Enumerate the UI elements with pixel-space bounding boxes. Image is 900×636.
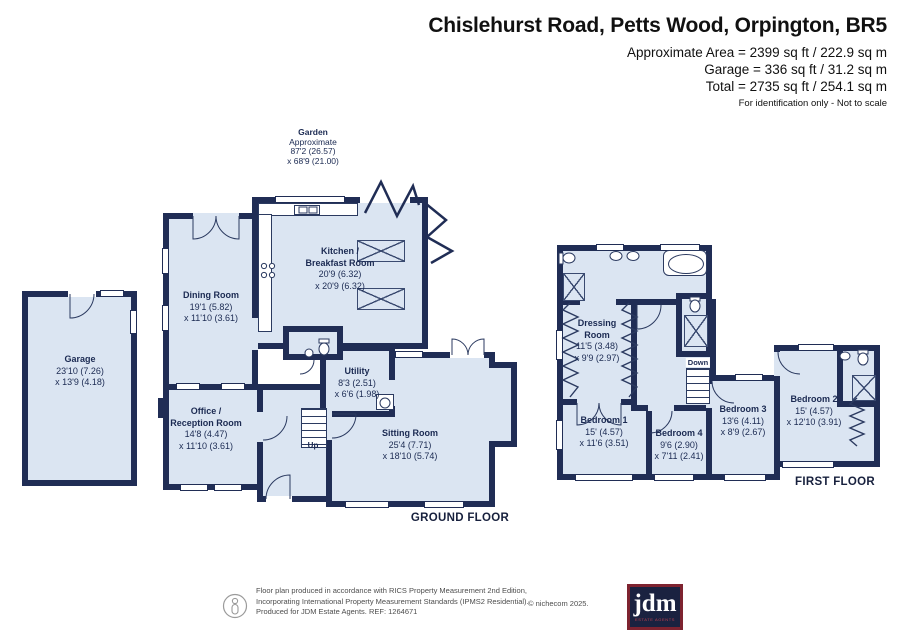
room-name: Bedroom 4 [654, 428, 703, 440]
first-floor-label: FIRST FLOOR [795, 476, 875, 488]
sitting-french-opening [450, 352, 484, 358]
kitchen-bifold-opening [360, 197, 410, 203]
ensuite-shower-tray [852, 375, 876, 401]
office-bay-window-1 [180, 484, 208, 491]
kitchen-counter-left [258, 214, 272, 332]
room-dim: x 11'10 (3.61) [183, 313, 239, 325]
office-bay-window-2 [214, 484, 242, 491]
landing-bedroom4-opening [648, 405, 674, 411]
room-dim: 13'6 (4.11) [719, 416, 766, 428]
sitting-label: Sitting Room 25'4 (7.71) x 18'10 (5.74) [382, 428, 438, 463]
bedroom2-door-opening [774, 352, 780, 376]
jdm-logo: jdm ESTATE AGENTS [627, 584, 683, 630]
sitting-window-top [395, 351, 423, 358]
bedroom4-label: Bedroom 4 9'6 (2.90) x 7'11 (2.41) [654, 428, 703, 463]
dining-label: Dining Room 19'1 (5.82) x 11'10 (3.61) [183, 290, 239, 325]
bedroom3-window [724, 474, 766, 481]
room-dim: 23'10 (7.26) [55, 366, 105, 378]
footer: Floor plan produced in accordance with R… [222, 586, 529, 626]
up-label: Up [308, 441, 319, 450]
bedroom3-window-top [735, 374, 763, 381]
sitting-room-wing [489, 362, 517, 447]
room-dim: 8'3 (2.51) [335, 378, 380, 390]
bath-dressing-opening [580, 299, 616, 305]
room-dim: 20'9 (6.32) [305, 269, 374, 281]
wc-door-arc [300, 360, 314, 374]
room-name: Dining Room [183, 290, 239, 302]
room-dim: x 12'10 (3.91) [787, 417, 842, 429]
garden-label: Garden Approximate 87'2 (26.57) x 68'9 (… [287, 128, 339, 166]
room-dim: x 13'9 (4.18) [55, 377, 105, 389]
dressing-label: Dressing Room 11'5 (3.48) x 9'9 (2.97) [575, 318, 620, 364]
room-dim: 25'4 (7.71) [382, 440, 438, 452]
jdm-logo-text: jdm [633, 592, 676, 616]
room-name: Kitchen / [305, 246, 374, 258]
bedroom2-label: Bedroom 2 15' (4.57) x 12'10 (3.91) [787, 394, 842, 429]
room-dim: x 6'6 (1.98) [335, 389, 380, 401]
bedroom1-window-left [556, 420, 563, 450]
garage-window-right [130, 310, 137, 334]
dressing-window-left [556, 330, 563, 360]
room-name: Room [575, 330, 620, 342]
office-chimney-breast [158, 398, 166, 418]
dressing-bedroom1-opening [577, 399, 621, 405]
kitchen-window-top [275, 196, 345, 203]
bedroom3-label: Bedroom 3 13'6 (4.11) x 8'9 (2.67) [719, 404, 766, 439]
room-name: Utility [335, 366, 380, 378]
room-name: Bedroom 1 [579, 415, 628, 427]
bifold-zigzag-right [425, 203, 452, 263]
utility-label: Utility 8'3 (2.51) x 6'6 (1.98) [335, 366, 380, 401]
garage-room [22, 291, 137, 486]
bedroom1-bay-window [575, 474, 633, 481]
room-dim: x 11'10 (3.61) [170, 441, 242, 453]
room-name: Reception Room [170, 418, 242, 430]
office-label: Office / Reception Room 14'8 (4.47) x 11… [170, 406, 242, 452]
bathtub-inner [668, 254, 704, 274]
dining-bay-doors-opening [193, 213, 239, 219]
room-dim: x 20'9 (6.32) [305, 281, 374, 293]
page-title: Chislehurst Road, Petts Wood, Orpington,… [428, 14, 887, 38]
approximate-area: Approximate Area = 2399 sq ft / 222.9 sq… [428, 44, 887, 61]
garage-area: Garage = 336 sq ft / 31.2 sq m [428, 61, 887, 78]
room-name: Sitting Room [382, 428, 438, 440]
shower-room-tray [684, 315, 708, 347]
disclaimer: For identification only - Not to scale [428, 98, 887, 109]
room-name: Breakfast Room [305, 258, 374, 270]
room-dim: 11'5 (3.48) [575, 341, 620, 353]
garden-dim2: x 68'9 (21.00) [287, 157, 339, 167]
bathroom-shower-tray [563, 273, 585, 301]
header: Chislehurst Road, Petts Wood, Orpington,… [428, 14, 887, 109]
floorplan-page: Chislehurst Road, Petts Wood, Orpington,… [0, 0, 900, 636]
dining-office-glazing-2 [221, 383, 245, 390]
bedroom2-window [782, 461, 834, 468]
hall-office-opening [257, 412, 263, 442]
bathroom-window-1 [596, 244, 624, 251]
room-dim: 15' (4.57) [579, 427, 628, 439]
footer-text: Floor plan produced in accordance with R… [256, 586, 529, 618]
garage-door-opening [68, 291, 96, 297]
jdm-logo-subtext: ESTATE AGENTS [635, 617, 675, 622]
room-name: Dressing [575, 318, 620, 330]
footer-line-3: Produced for JDM Estate Agents. REF: 126… [256, 607, 529, 618]
ground-floor-label: GROUND FLOOR [411, 512, 509, 524]
bedroom1-label: Bedroom 1 15' (4.57) x 11'6 (3.51) [579, 415, 628, 450]
copyright: © nichecom 2025. [528, 599, 589, 608]
room-dim: 9'6 (2.90) [654, 440, 703, 452]
kitchen-label: Kitchen / Breakfast Room 20'9 (6.32) x 2… [305, 246, 374, 292]
garage-label: Garage 23'10 (7.26) x 13'9 (4.18) [55, 354, 105, 389]
dining-window-left-1 [162, 248, 169, 274]
total-area: Total = 2735 sq ft / 254.1 sq m [428, 78, 887, 95]
footer-line-1: Floor plan produced in accordance with R… [256, 586, 529, 597]
room-dim: x 18'10 (5.74) [382, 451, 438, 463]
dining-window-left-2 [162, 305, 169, 331]
room-name: Office / [170, 406, 242, 418]
front-door-opening [266, 496, 292, 502]
room-dim: 15' (4.57) [787, 406, 842, 418]
room-name: Bedroom 3 [719, 404, 766, 416]
room-name: Garage [55, 354, 105, 366]
room-dim: x 9'9 (2.97) [575, 353, 620, 365]
bedroom2-window-top [798, 344, 834, 351]
room-dim: x 11'6 (3.51) [579, 438, 628, 450]
room-dim: x 8'9 (2.67) [719, 427, 766, 439]
garage-window-top [100, 290, 124, 297]
person-in-circle-icon [222, 586, 248, 626]
bedroom4-window [654, 474, 694, 481]
room-dim: 14'8 (4.47) [170, 429, 242, 441]
dining-office-glazing-1 [176, 383, 200, 390]
wc-room [283, 326, 343, 360]
sitting-window-bottom-1 [345, 501, 389, 508]
sitting-window-bottom-2 [424, 501, 464, 508]
room-name: Bedroom 2 [787, 394, 842, 406]
kitchen-sink [294, 205, 320, 215]
first-staircase [686, 368, 710, 404]
down-label: Down [686, 358, 710, 367]
room-dim: x 7'11 (2.41) [654, 451, 703, 463]
footer-line-2: Incorporating International Property Mea… [256, 597, 529, 608]
room-dim: 19'1 (5.82) [183, 302, 239, 314]
